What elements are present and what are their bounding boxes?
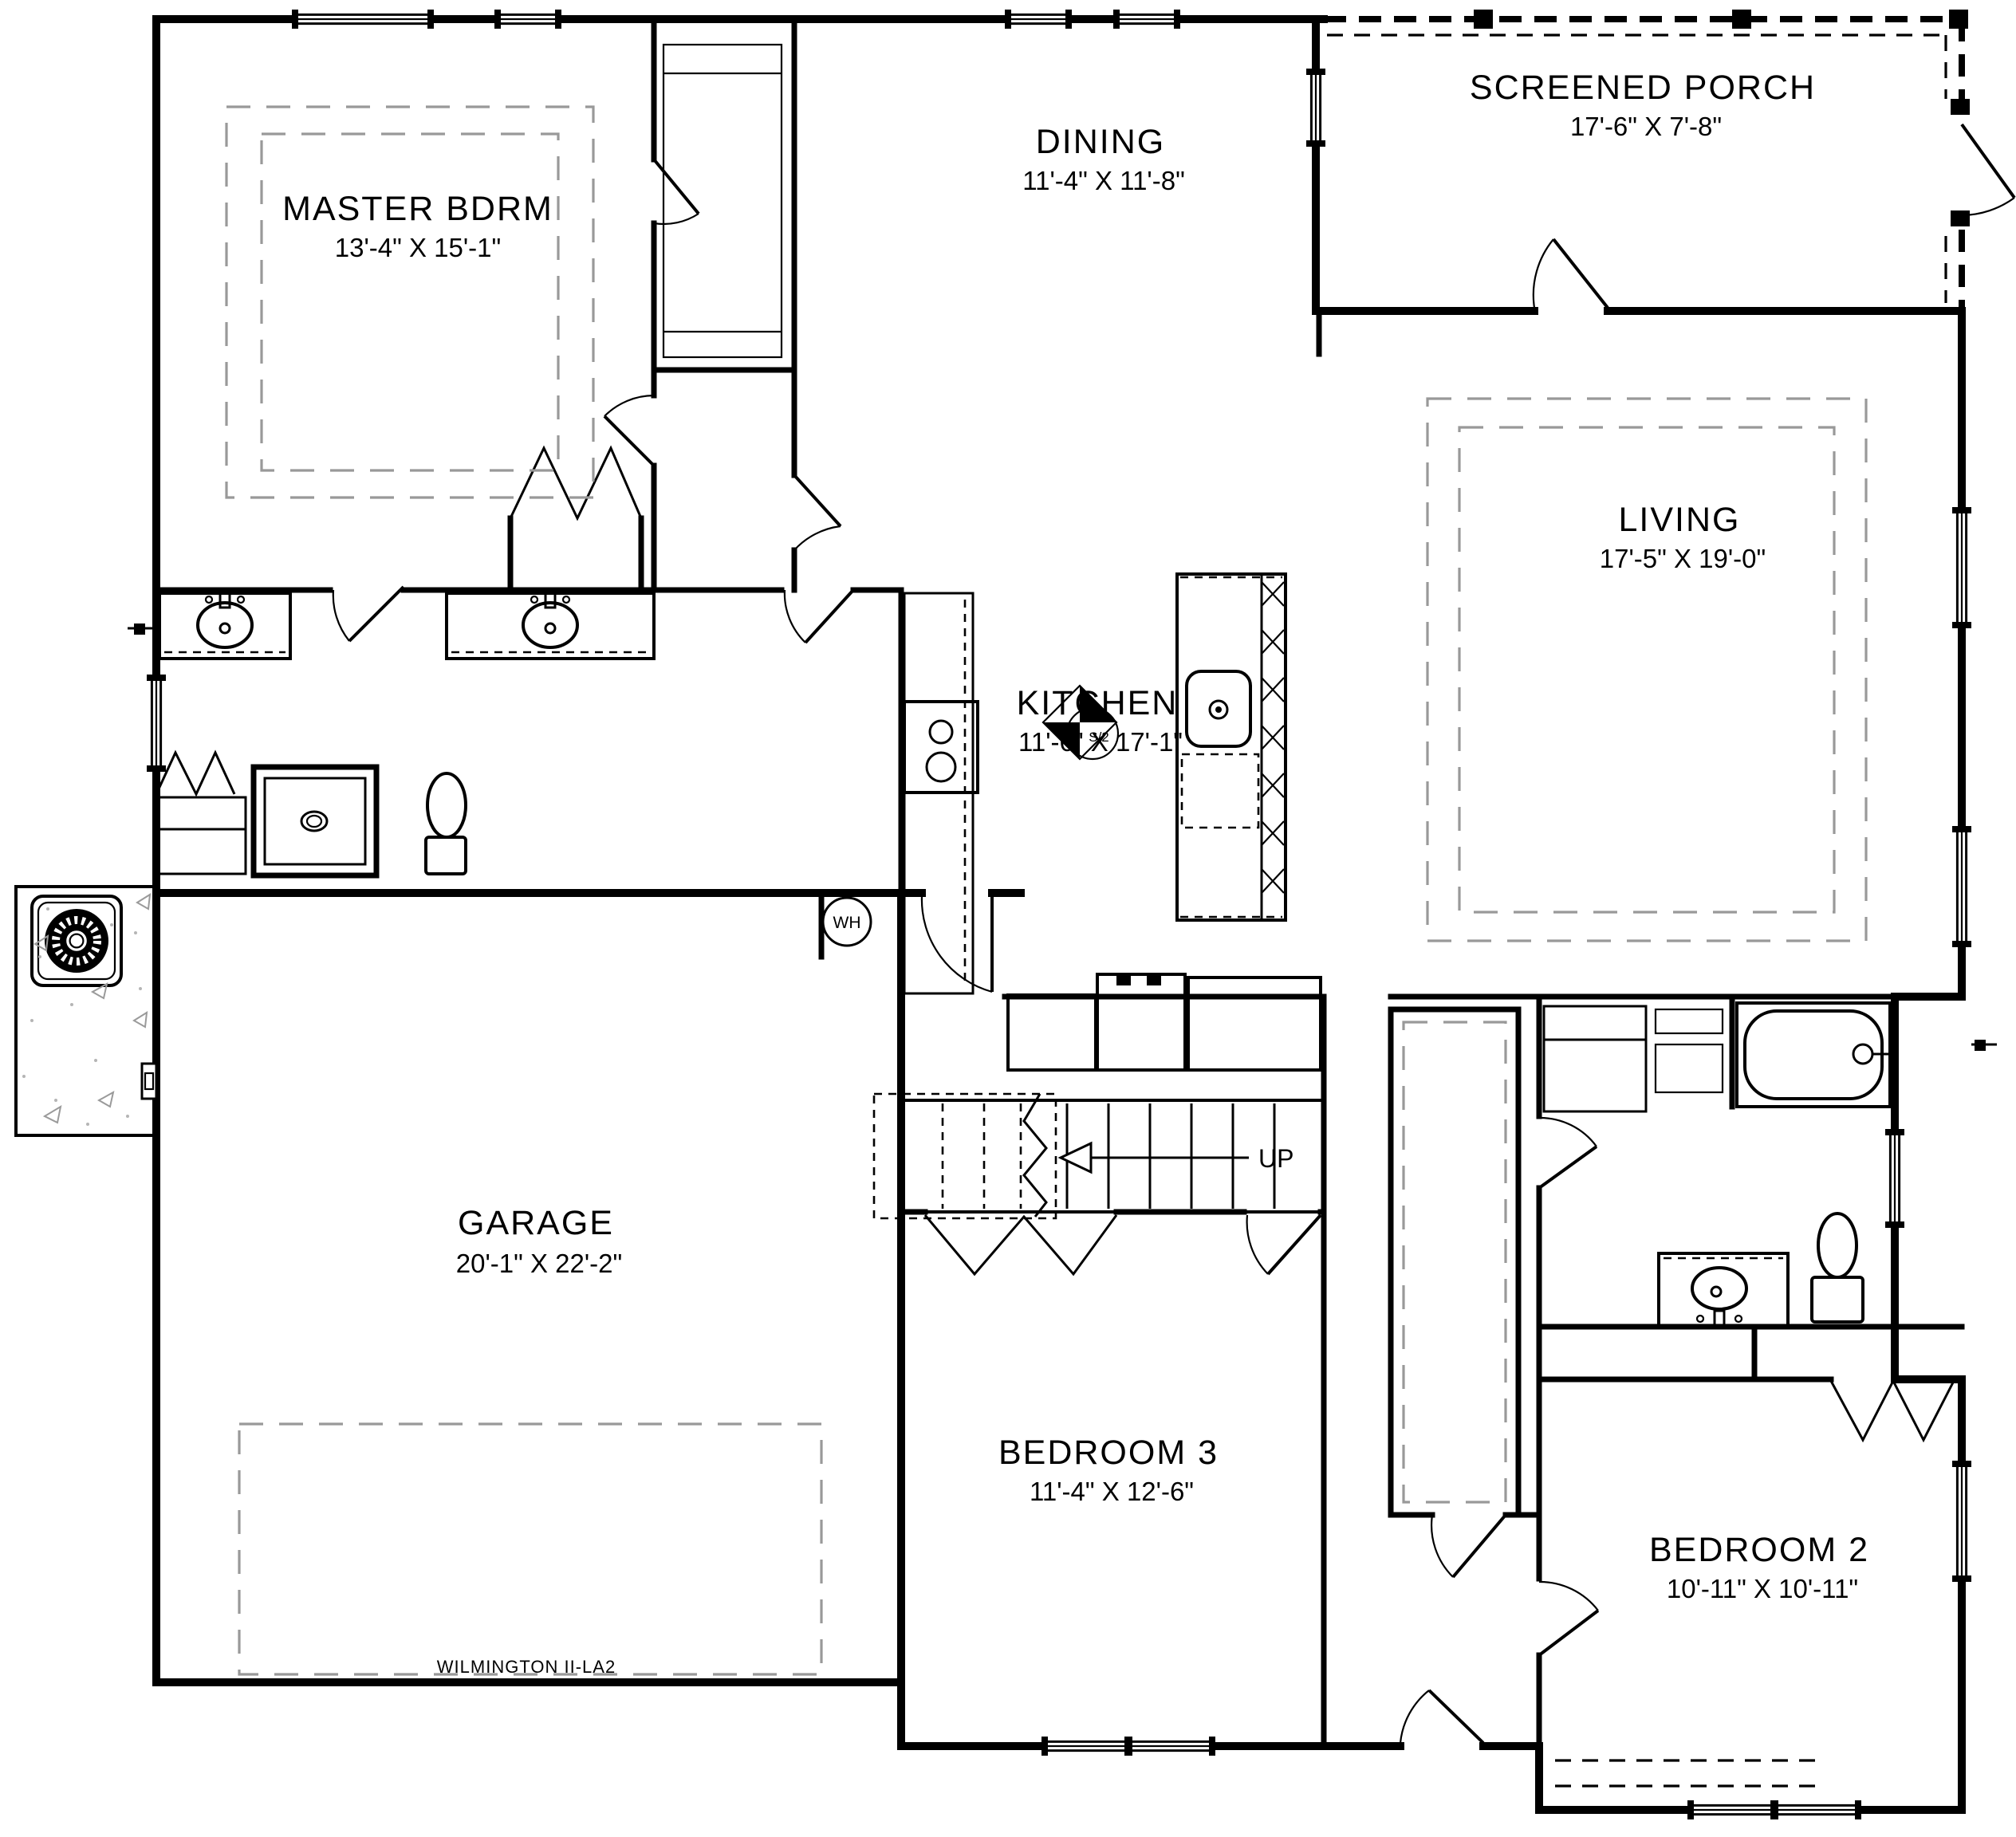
dining-window-2 [1113,10,1180,29]
entry-roof-dashes [1555,1760,1815,1786]
master-label: MASTER BDRM [282,190,553,228]
master-bath-door [333,587,404,641]
master-closet-door [654,159,699,224]
dining-dims: 11'-4" X 11'-8" [1022,166,1185,195]
bedroom2-closet-bifold [1831,1381,1954,1440]
dishwasher [1182,754,1258,828]
bedroom2-window-east [1952,1461,1971,1582]
master-dims: 13'-4" X 15'-1" [335,233,501,262]
master-vanity-2 [447,593,654,659]
master-window-1 [292,10,434,29]
dining-window-3 [1306,69,1325,147]
bedroom2-door [1539,1582,1598,1655]
island-sink [1187,671,1250,746]
bath-linen-bifold [156,753,234,794]
hall-bath-vanity [1659,1253,1788,1327]
bath-window [1885,1129,1904,1228]
garage-label: GARAGE [458,1204,614,1242]
wh-label: WH [833,914,861,932]
bedroom2-label: BEDROOM 2 [1649,1531,1869,1569]
bedroom3-label: BEDROOM 3 [998,1434,1219,1472]
dining-label: DINING [1036,123,1166,161]
porch-screen-walls [1324,10,2014,311]
garage-door-outline [239,1424,821,1674]
hall-bath-closet [1544,1006,1723,1111]
living-window-2 [1952,826,1971,947]
master-window-2 [494,10,561,29]
floor-plan-page: MASTER BDRM 13'-4" X 15'-1" DINING 11'-4… [0,0,2016,1837]
bedroom3-closet-bifold [925,1215,1116,1274]
shower [254,767,376,875]
hose-bib-left [128,623,153,635]
bedroom3-dims: 11'-4" X 12'-6" [1030,1477,1194,1506]
foyer-master-door [604,395,654,466]
garage-dims: 20'-1" X 22'-2" [456,1249,622,1278]
range [904,702,978,793]
porch-house-door [1534,239,1608,308]
master-vanity-1 [159,593,290,659]
living-window-1 [1952,507,1971,628]
bathtub [1737,1003,1890,1107]
hall-bath-door [1539,1118,1597,1188]
hall-bath-toilet [1812,1214,1863,1322]
tall-closet-door [1431,1515,1506,1577]
plan-title: WILMINGTON II-LA2 [437,1657,616,1677]
electrical-panel [142,1064,156,1099]
living-label: LIVING [1619,501,1741,539]
mudroom-cabinets [1008,974,1321,1070]
stairs [874,1094,1324,1218]
annotation-labels: UP WH S/2 WILMINGTON II-LA2 [437,730,1294,1677]
porch-dims: 17'-6" X 7'-8" [1570,112,1722,141]
floor-plan-drawing: MASTER BDRM 13'-4" X 15'-1" DINING 11'-4… [0,0,2016,1837]
bedroom2-dims: 10'-11" X 10'-11" [1667,1574,1858,1603]
kitchen-label: KITCHEN [1017,684,1179,722]
stairs-up-arrow [1061,1143,1249,1172]
porch-label: SCREENED PORCH [1470,69,1816,107]
bifold-doors [156,448,1954,1440]
dining-window-1 [1005,10,1072,29]
master-bath-window [147,675,166,772]
bedroom3-door [1247,1215,1321,1274]
master-toilet [426,773,466,874]
hose-bib-right [1971,1040,1997,1051]
garage-entry-door [922,896,992,992]
bedroom2-window-south [1687,1800,1861,1819]
up-label: UP [1258,1144,1293,1173]
front-door [1400,1690,1483,1743]
living-rug-outline [1427,399,1866,941]
master-closet2-bifold [510,448,641,518]
ac-condenser-pad [16,887,156,1135]
kitchen-island [1177,574,1286,920]
master-rug-outline [226,107,593,498]
bath-linen-closet [156,797,246,874]
doors [333,159,1608,1743]
master-closet-shelves [663,45,782,357]
foyer-hall-door [794,475,841,550]
room-labels: MASTER BDRM 13'-4" X 15'-1" DINING 11'-4… [282,69,1869,1603]
bedroom3-window [1041,1737,1215,1756]
living-dims: 17'-5" X 19'-0" [1600,544,1766,573]
hall-kitchen-door [785,590,853,643]
fan-symbol-label: S/2 [1089,730,1109,745]
hall-tall-closet [1404,1022,1506,1502]
